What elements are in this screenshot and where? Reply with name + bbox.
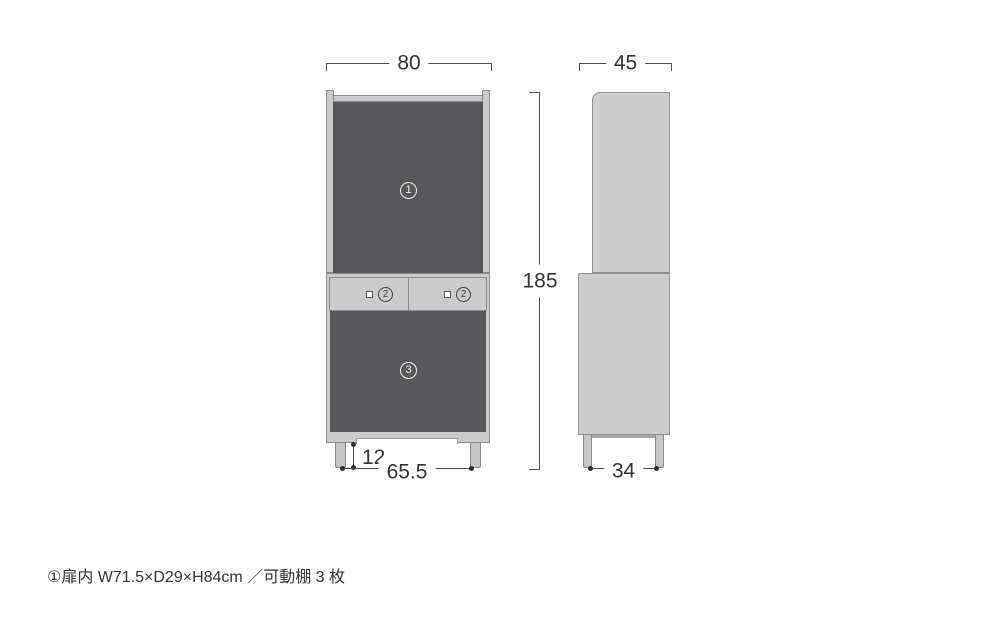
front-width-value: 80 [389,53,428,74]
drawer-band: 2 2 [329,277,487,311]
side-upper-body [592,92,670,273]
drawer-left-handle-icon [366,291,373,298]
side-leg-span-dimension: 34 [589,468,658,469]
furniture-dimension-diagram: 80 1 2 2 3 12 65.5 [0,0,1000,621]
interior-dimension-notes: ①扉内 W71.5×D29×H84cm ／可動棚 3 枚 ②引出し内 W31.2… [47,515,358,621]
drawer-divider [408,278,409,310]
drawer-right-badge: 2 [456,287,471,302]
front-upper-door-panel: 1 [333,102,483,273]
front-lower-door-panel: 3 [330,311,486,432]
front-leg-span-dimension: 65.5 [341,468,473,469]
height-value: 185 [518,265,561,298]
side-rear-leg [655,435,664,468]
door-1-badge: 1 [400,182,417,199]
drawer-right-handle-icon [444,291,451,298]
side-lower-body [578,273,670,435]
front-upper-right-post [482,90,490,273]
front-left-leg [335,443,346,468]
side-depth-value: 45 [606,53,645,74]
front-width-dimension: 80 [326,63,492,71]
door-3-badge: 3 [400,362,417,379]
front-apron-notch [356,438,458,444]
side-leg-span-value: 34 [604,461,643,482]
front-right-leg [470,443,481,468]
height-dimension: 185 [529,92,540,470]
side-front-leg [583,435,592,468]
side-bottom-recess [592,435,656,438]
front-upper-top-bar [333,95,483,102]
drawer-left-badge: 2 [378,287,393,302]
leg-height-dimension-line [353,444,354,468]
note-line-1: ①扉内 W71.5×D29×H84cm ／可動棚 3 枚 [47,565,358,590]
side-depth-dimension: 45 [579,63,672,71]
front-leg-span-value: 65.5 [379,462,436,483]
